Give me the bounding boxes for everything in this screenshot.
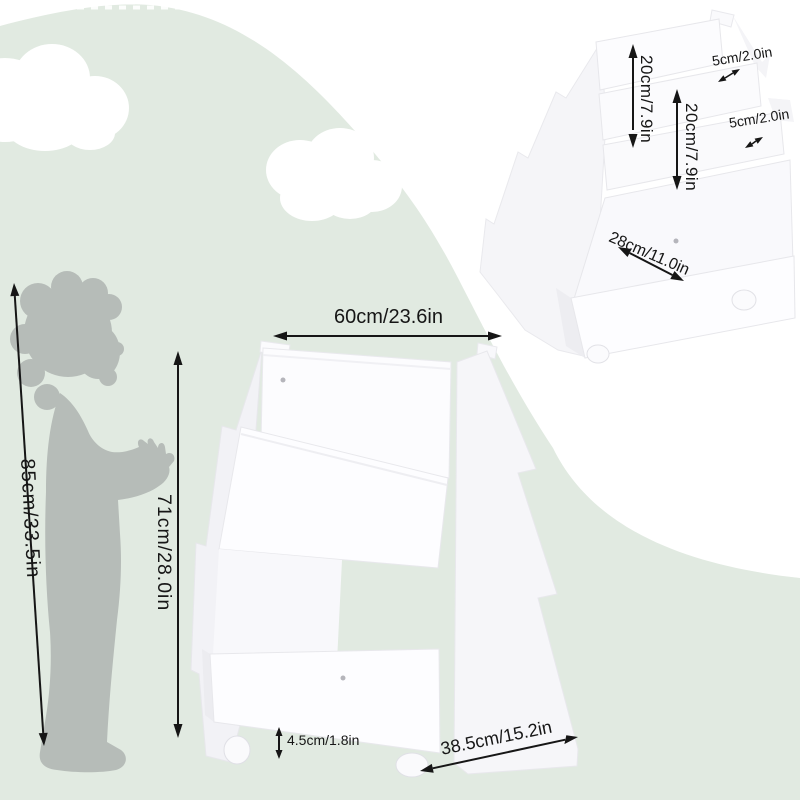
height-dimension-label: 71cm/28.0in xyxy=(153,494,174,611)
top-dashed-border xyxy=(0,0,620,10)
front-screw-top xyxy=(281,378,286,383)
front-bin-interior xyxy=(213,549,342,662)
rear-screw xyxy=(674,239,679,244)
middle-shelf-dimension-label: 20cm/7.9in xyxy=(682,103,700,191)
front-caster-right xyxy=(396,753,428,777)
caster-height-dimension-label: 4.5cm/1.8in xyxy=(287,733,359,748)
diagram-graphics xyxy=(0,0,800,800)
width-dimension-label: 60cm/23.6in xyxy=(334,307,443,329)
rear-caster-right xyxy=(732,290,756,310)
front-screw-bottom xyxy=(341,676,346,681)
front-caster-left xyxy=(224,736,250,764)
top-shelf-dimension-label: 20cm/7.9in xyxy=(637,55,655,143)
rear-caster-left xyxy=(587,345,609,363)
product-dimension-diagram: 60cm/23.6in 71cm/28.0in 85cm/33.5in 4.5c… xyxy=(0,0,800,800)
